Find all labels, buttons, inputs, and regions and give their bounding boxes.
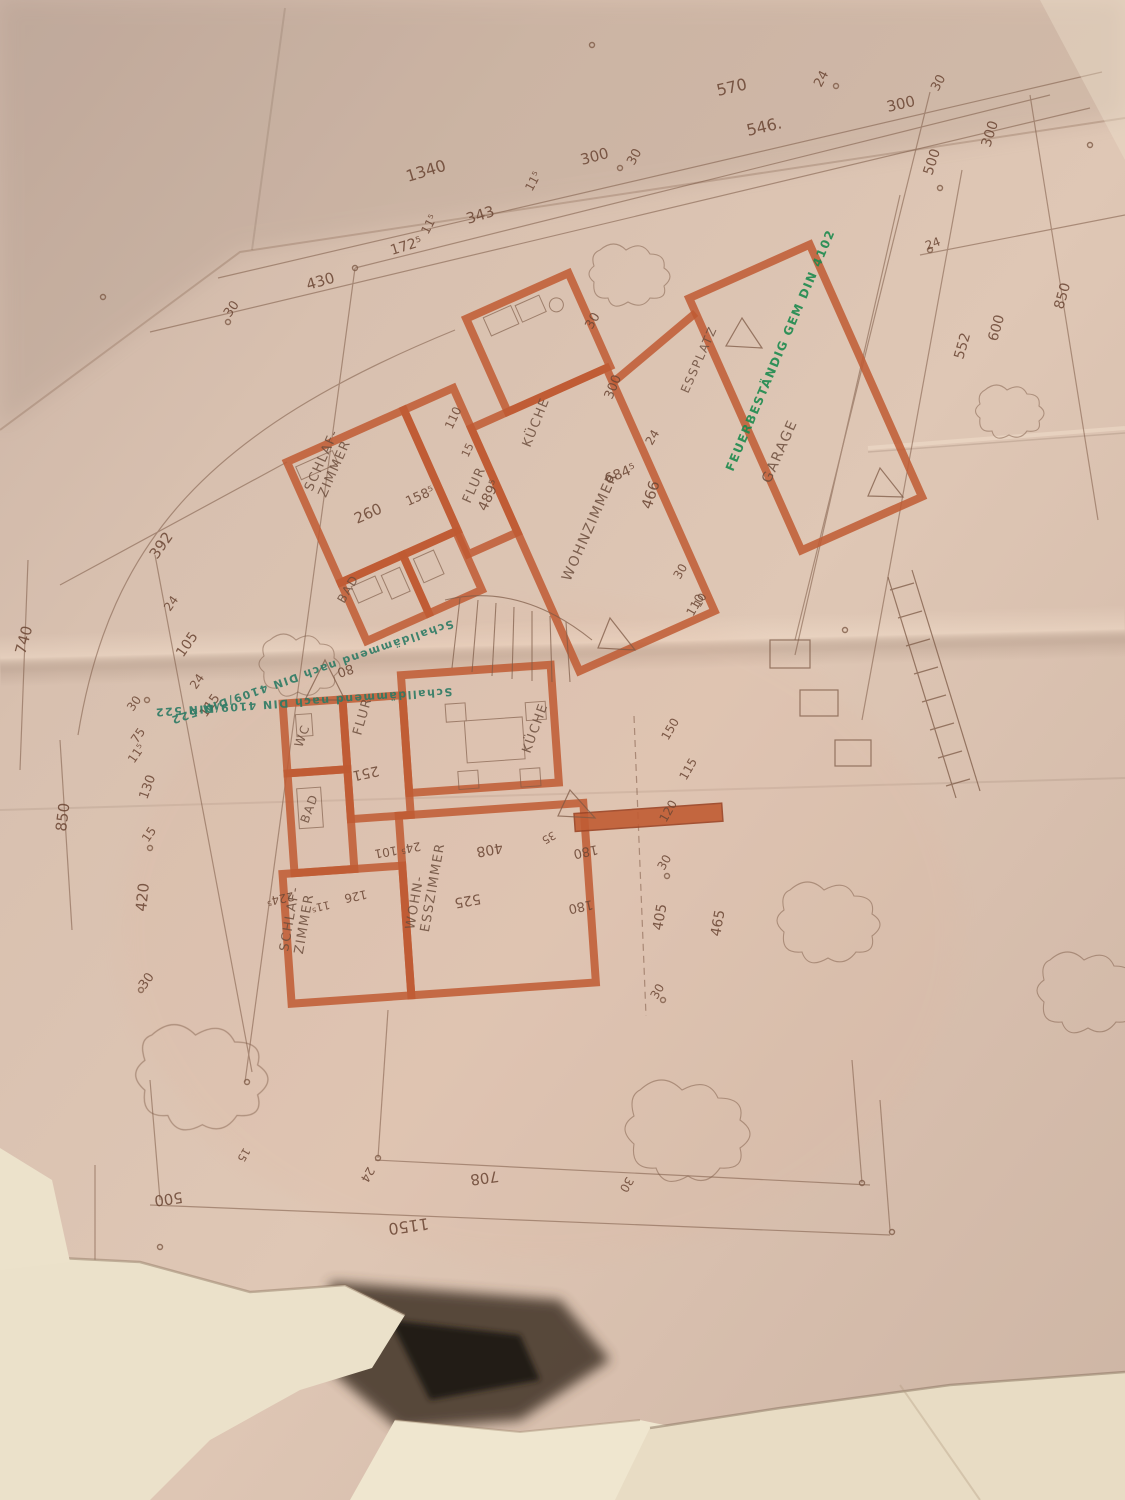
floorplan-photo: SCHLAF-ZIMMERBADFLURKÜCHEWOHNZIMMERESSPL… — [0, 0, 1125, 1500]
site-plan-drawing: SCHLAF-ZIMMERBADFLURKÜCHEWOHNZIMMERESSPL… — [0, 0, 1125, 1500]
dim-33: 420 — [132, 882, 153, 912]
dim-27: 850 — [52, 802, 73, 833]
